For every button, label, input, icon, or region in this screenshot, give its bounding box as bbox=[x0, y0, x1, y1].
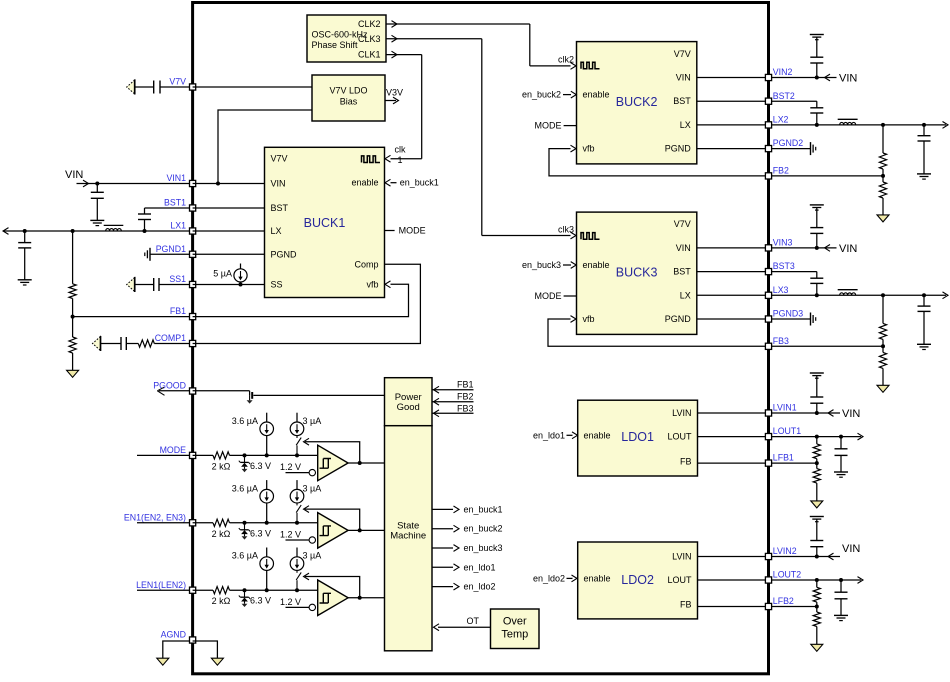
svg-text:LX3: LX3 bbox=[773, 285, 789, 295]
svg-text:VIN2: VIN2 bbox=[773, 67, 793, 77]
svg-text:clk3: clk3 bbox=[558, 225, 574, 235]
svg-text:PGND: PGND bbox=[271, 249, 298, 259]
svg-text:LOUT: LOUT bbox=[667, 575, 692, 585]
svg-text:1: 1 bbox=[397, 155, 402, 165]
svg-text:BUCK3: BUCK3 bbox=[616, 266, 658, 280]
svg-text:FB: FB bbox=[680, 600, 692, 610]
svg-text:LDO2: LDO2 bbox=[621, 573, 654, 587]
svg-text:PGND: PGND bbox=[665, 314, 692, 324]
svg-text:enable: enable bbox=[583, 260, 610, 270]
svg-text:Temp: Temp bbox=[501, 629, 528, 641]
svg-text:en_ldo1: en_ldo1 bbox=[533, 430, 565, 440]
svg-text:vfb: vfb bbox=[583, 144, 595, 154]
svg-text:FB1: FB1 bbox=[170, 306, 186, 316]
svg-text:MODE: MODE bbox=[535, 291, 562, 301]
svg-text:LFB1: LFB1 bbox=[773, 453, 794, 463]
svg-text:BST2: BST2 bbox=[773, 91, 795, 101]
svg-text:3.6 µA: 3.6 µA bbox=[232, 416, 258, 426]
svg-text:V7V: V7V bbox=[169, 77, 186, 87]
svg-text:en_buck2: en_buck2 bbox=[522, 90, 561, 100]
svg-text:LOUT: LOUT bbox=[667, 432, 692, 442]
svg-text:LX: LX bbox=[271, 226, 282, 236]
svg-text:LVIN: LVIN bbox=[672, 552, 691, 562]
svg-text:clk2: clk2 bbox=[558, 55, 574, 65]
svg-text:VIN: VIN bbox=[839, 73, 857, 85]
svg-text:en_buck3: en_buck3 bbox=[522, 260, 561, 270]
svg-text:VIN: VIN bbox=[65, 169, 83, 181]
svg-text:BST1: BST1 bbox=[164, 198, 186, 208]
svg-text:V7V: V7V bbox=[674, 49, 691, 59]
svg-text:LX2: LX2 bbox=[773, 115, 789, 125]
svg-text:BST3: BST3 bbox=[773, 261, 795, 271]
svg-text:FB3: FB3 bbox=[457, 403, 474, 413]
svg-text:VIN: VIN bbox=[676, 73, 691, 83]
svg-text:Good: Good bbox=[397, 402, 420, 413]
svg-text:vfb: vfb bbox=[583, 314, 595, 324]
svg-text:COMP1: COMP1 bbox=[155, 333, 186, 343]
svg-text:LOUT2: LOUT2 bbox=[773, 570, 801, 580]
svg-text:enable: enable bbox=[584, 573, 611, 583]
svg-text:V3V: V3V bbox=[386, 88, 403, 98]
svg-text:VIN: VIN bbox=[842, 543, 860, 555]
svg-text:PGND: PGND bbox=[665, 144, 692, 154]
svg-text:CLK2: CLK2 bbox=[358, 19, 381, 29]
svg-text:LEN1(LEN2): LEN1(LEN2) bbox=[136, 580, 186, 590]
svg-text:3 µA: 3 µA bbox=[303, 483, 322, 493]
svg-text:3 µA: 3 µA bbox=[303, 551, 322, 561]
svg-text:2 kΩ: 2 kΩ bbox=[212, 529, 231, 539]
svg-text:en_ldo2: en_ldo2 bbox=[464, 582, 496, 592]
svg-text:SS1: SS1 bbox=[169, 274, 186, 284]
svg-text:V7V LDO: V7V LDO bbox=[329, 86, 367, 96]
svg-text:VIN1: VIN1 bbox=[166, 173, 186, 183]
svg-text:5 µA: 5 µA bbox=[213, 269, 232, 279]
svg-text:en_buck2: en_buck2 bbox=[464, 524, 503, 534]
svg-text:BUCK1: BUCK1 bbox=[304, 216, 346, 230]
svg-text:Phase Shift: Phase Shift bbox=[312, 40, 359, 50]
svg-text:2 kΩ: 2 kΩ bbox=[212, 461, 231, 471]
svg-text:BST: BST bbox=[673, 267, 691, 277]
svg-text:FB1: FB1 bbox=[457, 380, 474, 390]
svg-text:V7V: V7V bbox=[674, 219, 691, 229]
svg-text:en_ldo1: en_ldo1 bbox=[464, 562, 496, 572]
svg-text:1.2 V: 1.2 V bbox=[280, 529, 301, 539]
svg-text:enable: enable bbox=[351, 178, 378, 188]
svg-text:FB: FB bbox=[680, 456, 692, 466]
svg-text:MODE: MODE bbox=[399, 226, 426, 236]
svg-text:6.3 V: 6.3 V bbox=[250, 596, 271, 606]
svg-text:VIN3: VIN3 bbox=[773, 238, 793, 248]
svg-text:vfb: vfb bbox=[366, 279, 378, 289]
svg-text:AGND: AGND bbox=[161, 630, 186, 640]
svg-text:LVIN1: LVIN1 bbox=[773, 403, 797, 413]
svg-text:PGND3: PGND3 bbox=[773, 309, 803, 319]
svg-text:FB3: FB3 bbox=[773, 336, 789, 346]
svg-text:PGND2: PGND2 bbox=[773, 138, 803, 148]
svg-text:clk: clk bbox=[395, 145, 406, 155]
svg-text:BST: BST bbox=[271, 203, 289, 213]
svg-text:LFB2: LFB2 bbox=[773, 596, 794, 606]
svg-text:1.2 V: 1.2 V bbox=[280, 462, 301, 472]
svg-text:6.3 V: 6.3 V bbox=[250, 461, 271, 471]
svg-text:BUCK2: BUCK2 bbox=[616, 95, 658, 109]
svg-text:OT: OT bbox=[467, 616, 480, 626]
svg-text:enable: enable bbox=[584, 430, 611, 440]
svg-text:en_buck3: en_buck3 bbox=[464, 543, 503, 553]
svg-text:LDO1: LDO1 bbox=[621, 430, 654, 444]
svg-text:SS: SS bbox=[271, 280, 283, 290]
svg-text:en_buck1: en_buck1 bbox=[400, 178, 439, 188]
svg-text:LOUT1: LOUT1 bbox=[773, 426, 801, 436]
svg-text:1.2 V: 1.2 V bbox=[280, 597, 301, 607]
svg-text:Machine: Machine bbox=[390, 531, 426, 542]
svg-text:MODE: MODE bbox=[535, 121, 562, 131]
svg-text:V7V: V7V bbox=[271, 154, 288, 164]
svg-text:Over: Over bbox=[503, 616, 527, 628]
svg-text:VIN: VIN bbox=[839, 243, 857, 255]
svg-text:LX: LX bbox=[680, 120, 691, 130]
svg-text:MODE: MODE bbox=[160, 445, 187, 455]
svg-text:Bias: Bias bbox=[340, 97, 358, 107]
svg-text:PGOOD: PGOOD bbox=[153, 381, 186, 391]
svg-text:LVIN: LVIN bbox=[672, 408, 691, 418]
svg-text:en_ldo2: en_ldo2 bbox=[533, 573, 565, 583]
svg-text:LX: LX bbox=[680, 290, 691, 300]
svg-text:2 kΩ: 2 kΩ bbox=[212, 596, 231, 606]
svg-text:3 µA: 3 µA bbox=[303, 416, 322, 426]
svg-text:LVIN2: LVIN2 bbox=[773, 546, 797, 556]
svg-text:FB2: FB2 bbox=[773, 166, 789, 176]
svg-text:VIN: VIN bbox=[842, 408, 860, 420]
svg-text:6.3 V: 6.3 V bbox=[250, 528, 271, 538]
svg-text:VIN: VIN bbox=[271, 179, 286, 189]
svg-text:3.6 µA: 3.6 µA bbox=[232, 483, 258, 493]
svg-text:FB2: FB2 bbox=[457, 392, 474, 402]
svg-text:CLK1: CLK1 bbox=[358, 50, 381, 60]
svg-text:Comp: Comp bbox=[354, 259, 378, 269]
svg-text:3.6 µA: 3.6 µA bbox=[232, 551, 258, 561]
svg-text:EN1(EN2, EN3): EN1(EN2, EN3) bbox=[124, 512, 186, 522]
svg-text:VIN: VIN bbox=[676, 243, 691, 253]
svg-text:enable: enable bbox=[583, 90, 610, 100]
svg-text:CLK3: CLK3 bbox=[358, 34, 381, 44]
svg-text:BST: BST bbox=[673, 96, 691, 106]
svg-text:LX1: LX1 bbox=[170, 221, 186, 231]
svg-text:PGND1: PGND1 bbox=[156, 244, 186, 254]
svg-text:en_buck1: en_buck1 bbox=[464, 504, 503, 514]
